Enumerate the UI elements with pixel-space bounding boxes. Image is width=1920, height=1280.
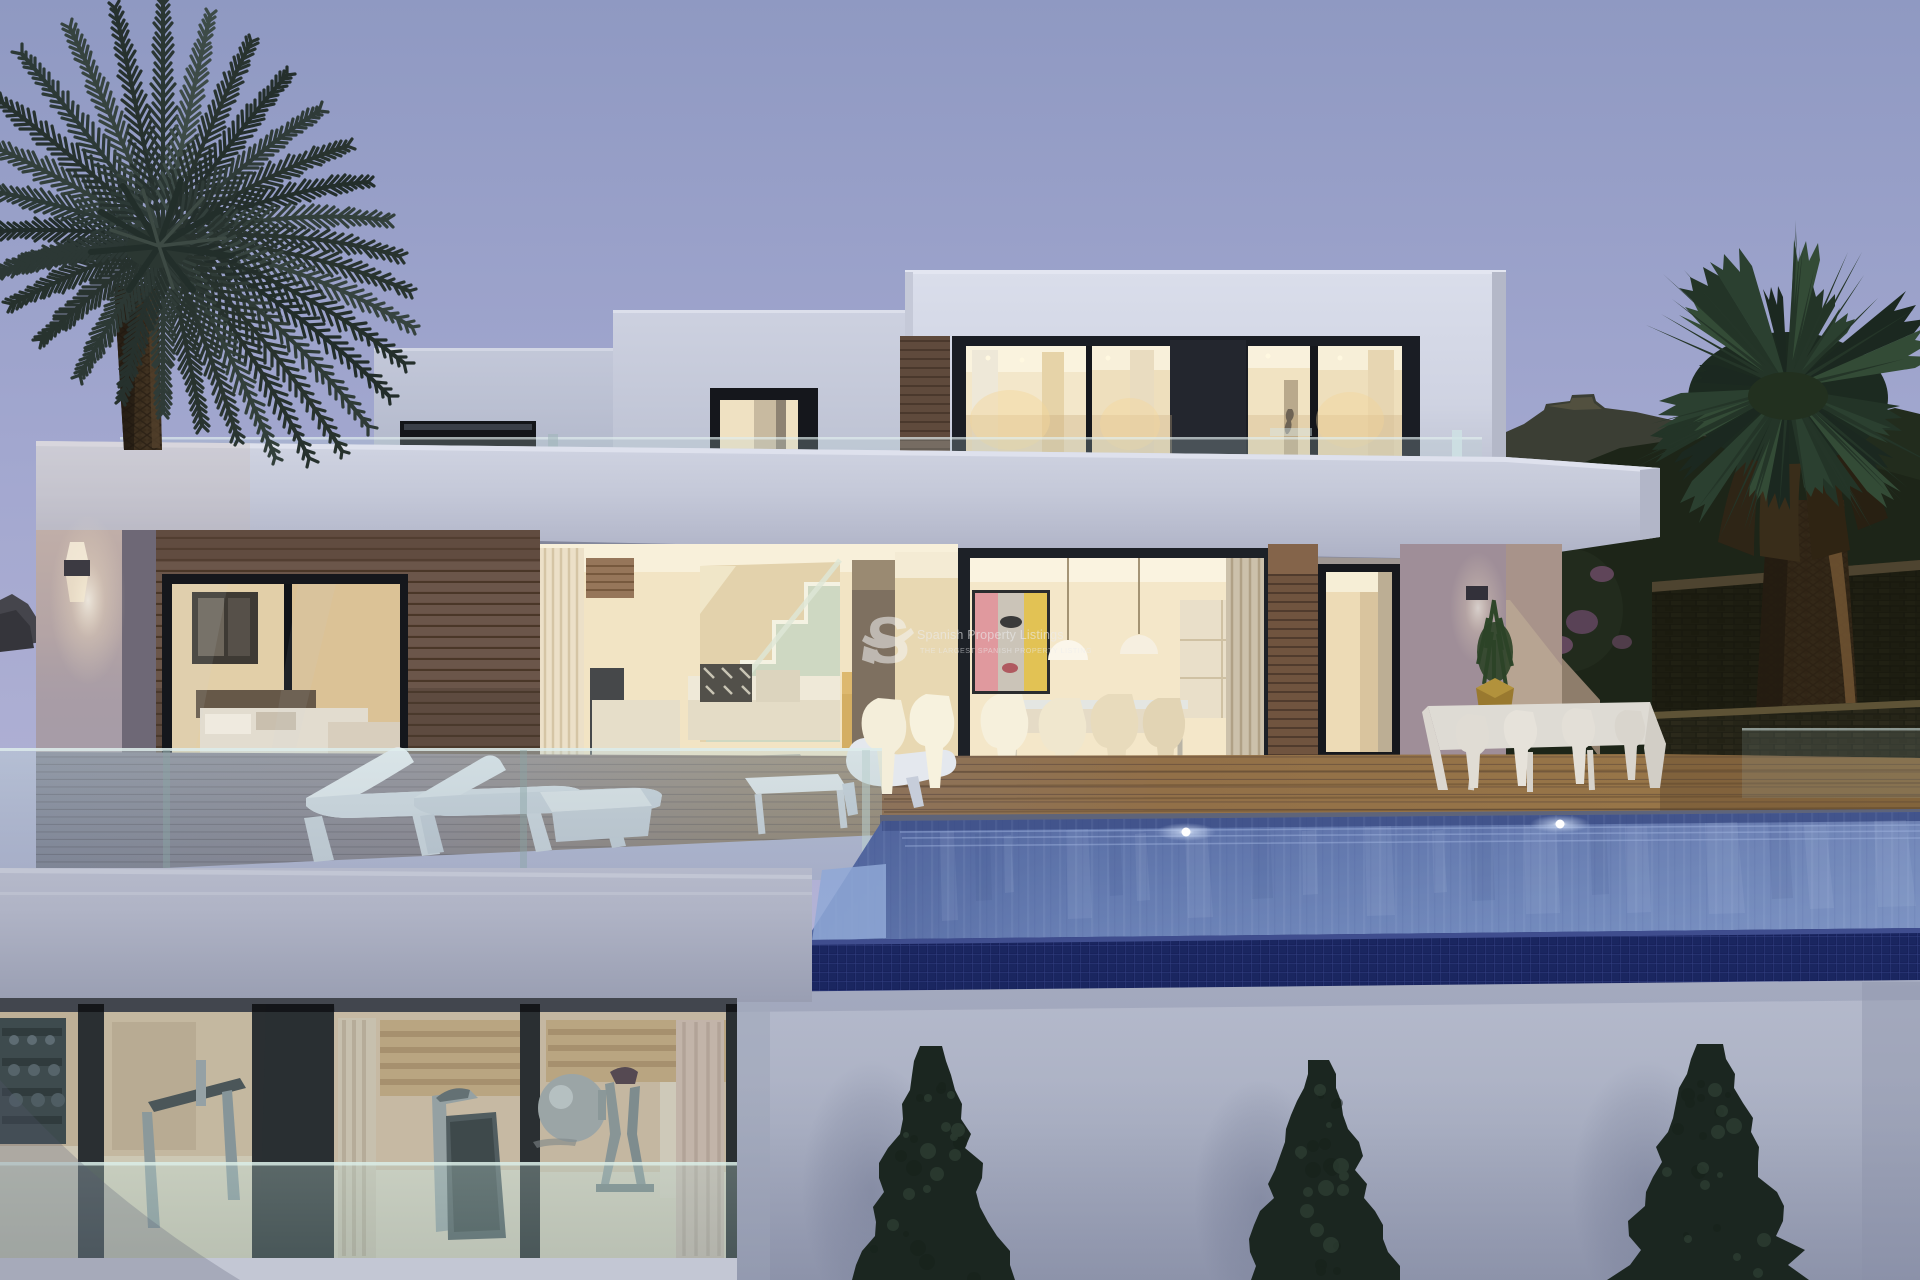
svg-text:Spanish Property Listings: Spanish Property Listings: [917, 628, 1064, 642]
svg-text:THE LARGEST SPANISH PROPERTY L: THE LARGEST SPANISH PROPERTY LISTING: [920, 646, 1092, 655]
